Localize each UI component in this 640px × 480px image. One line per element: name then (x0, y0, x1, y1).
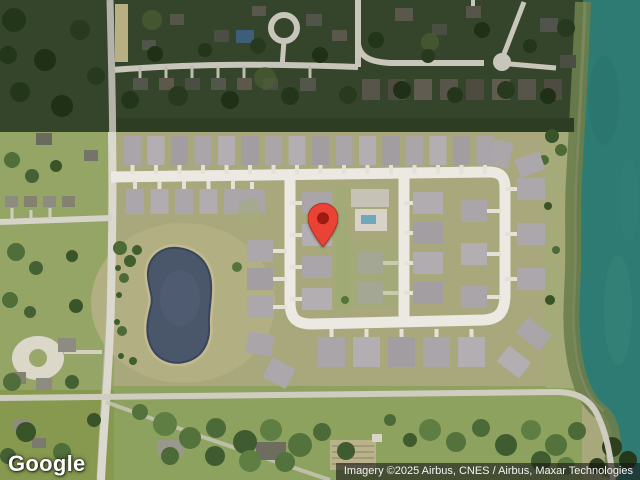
subdivision-houses-house (413, 192, 443, 214)
google-logo[interactable]: Google (8, 451, 86, 477)
subdivision-houses-house (458, 337, 485, 367)
old-neighborhood-house (414, 79, 432, 100)
field-details-tree (24, 306, 36, 318)
old-neighborhood (332, 30, 347, 41)
field-details-tree (25, 169, 39, 183)
old-neighborhood (493, 53, 511, 71)
old-neighborhood (306, 14, 322, 26)
field-details-tree (4, 152, 20, 168)
field-details-tree (3, 373, 21, 391)
old-neighborhood-tree (339, 86, 357, 104)
field-details-tree (132, 245, 142, 255)
field-details-tree (113, 241, 127, 255)
old-neighborhood (252, 6, 266, 16)
field-details-tree (545, 295, 555, 305)
field-details-tree (132, 404, 148, 420)
field-details-house (62, 196, 75, 207)
subdivision-houses (351, 189, 389, 207)
old-neighborhood (170, 14, 184, 25)
subdivision-houses-house (124, 136, 141, 165)
subdivision-houses-house (517, 178, 545, 200)
old-neighborhood-tree (523, 39, 537, 53)
subdivision-houses-house (289, 136, 306, 165)
old-neighborhood (236, 30, 254, 43)
old-neighborhood-tree (87, 67, 105, 85)
subdivision-houses-house (461, 200, 487, 222)
pond (160, 270, 200, 326)
field-details-tree (115, 265, 121, 271)
old-neighborhood-house (466, 79, 484, 100)
field-details-tree (116, 292, 122, 298)
map-viewport: Google Imagery ©2025 Airbus, CNES / Airb… (0, 0, 640, 480)
subdivision-houses-house (353, 337, 380, 367)
subdivision-houses-house (151, 189, 169, 214)
field-details-tree (545, 129, 559, 143)
subdivision-houses-house (453, 136, 470, 165)
field-details-tree (118, 353, 124, 359)
subdivision-houses-house (336, 136, 353, 165)
old-neighborhood-tree (281, 87, 299, 105)
subdivision-houses-house (406, 136, 423, 165)
subdivision-houses-house (359, 136, 376, 165)
field-details-tree (124, 255, 136, 267)
field-details-tree (69, 299, 83, 313)
old-neighborhood (282, 41, 284, 67)
old-neighborhood (560, 55, 576, 68)
old-neighborhood (300, 78, 316, 91)
old-neighborhood-tree (421, 49, 435, 63)
subdivision-houses-house (148, 136, 165, 165)
field-details-tree (7, 243, 25, 261)
field-details-tree (205, 446, 225, 466)
field-details-tree (16, 422, 36, 442)
old-neighborhood-tree (421, 33, 439, 51)
subdivision-houses-house (413, 282, 443, 304)
field-details-tree (555, 144, 567, 156)
subdivision-houses-house (242, 136, 259, 165)
subdivision-houses-house (247, 240, 273, 262)
field-details-tree (521, 420, 541, 440)
old-neighborhood-tree (198, 43, 212, 57)
field-details-tree (260, 419, 282, 441)
subdivision-houses (245, 331, 274, 357)
subdivision-houses-house (517, 268, 545, 290)
field-details-tree (545, 434, 567, 456)
old-neighborhood-tree (168, 86, 188, 106)
field-details-tree (239, 450, 261, 472)
field-details (36, 133, 52, 145)
old-neighborhood-tree (2, 8, 26, 32)
subdivision-houses-house (126, 189, 144, 214)
field-details-tree (275, 452, 295, 472)
old-neighborhood (432, 24, 447, 35)
old-neighborhood-tree (254, 67, 276, 89)
old-neighborhood-house (133, 78, 148, 90)
field-details-tree (2, 292, 18, 308)
subdivision-houses-house (218, 136, 235, 165)
subdivision-houses-house (388, 337, 415, 367)
subdivision-houses-house (195, 136, 212, 165)
subdivision-houses-house (171, 136, 188, 165)
old-neighborhood (540, 18, 558, 32)
old-neighborhood-tree (70, 20, 90, 40)
field-details-tree (446, 432, 466, 452)
subdivision-houses-tree (341, 296, 349, 304)
subdivision-houses-house (175, 189, 193, 214)
field-details-tree (419, 419, 441, 441)
field-details (36, 378, 52, 390)
subdivision-houses-house (383, 136, 400, 165)
lake-water (619, 158, 639, 242)
pin-body-icon (308, 203, 338, 246)
subdivision-houses-house (247, 268, 273, 290)
field-details-tree (65, 375, 79, 389)
old-neighborhood-tree (221, 91, 239, 109)
field-details-tree (114, 319, 120, 325)
old-neighborhood-house (362, 79, 380, 100)
field-details-tree (29, 261, 43, 275)
field-details-tree (313, 423, 331, 441)
old-neighborhood-tree (312, 47, 328, 63)
old-neighborhood-tree (474, 22, 490, 38)
old-neighborhood-house (237, 78, 252, 90)
old-neighborhood-house (185, 78, 200, 90)
imagery-attribution: Imagery ©2025 Airbus, CNES / Airbus, Max… (336, 463, 640, 480)
old-neighborhood-tree (34, 49, 56, 71)
field-details-house (24, 196, 37, 207)
location-pin[interactable] (308, 202, 338, 252)
lake-water (604, 255, 632, 365)
field-details-tree (544, 202, 552, 210)
old-neighborhood-tree (557, 19, 575, 37)
old-neighborhood-house (211, 78, 226, 90)
field-details-tree (495, 434, 517, 456)
old-neighborhood (395, 8, 413, 21)
field-details-tree (233, 430, 257, 454)
old-neighborhood-tree (393, 81, 411, 99)
old-neighborhood-tree (10, 82, 30, 102)
field-details-tree (119, 273, 129, 283)
subdivision-houses-house (302, 288, 332, 310)
field-details-tree (129, 357, 137, 365)
field-details-tree (206, 418, 226, 438)
subdivision-houses-house (430, 136, 447, 165)
old-neighborhood-tree (447, 87, 463, 103)
subdivision-houses-house (247, 296, 273, 318)
subdivision-houses-house (312, 136, 329, 165)
subdivision-houses-house (517, 223, 545, 245)
subdivision-houses-house (413, 222, 443, 244)
field-details (32, 438, 46, 448)
field-details-tree (179, 427, 201, 449)
field-details-tree (161, 447, 179, 465)
field-details-tree (337, 442, 355, 460)
old-neighborhood-tree (250, 38, 266, 54)
field-details-tree (87, 413, 101, 427)
subdivision-houses-house (200, 189, 218, 214)
old-neighborhood (466, 6, 481, 18)
field-details-house (5, 196, 18, 207)
field-details (58, 338, 76, 352)
old-neighborhood-tree (51, 95, 73, 117)
old-neighborhood (115, 4, 128, 62)
lake-water (589, 55, 619, 145)
subdivision-houses-house (423, 337, 450, 367)
subdivision-houses-tree (232, 262, 242, 272)
field-details-tree (117, 326, 127, 336)
subdivision-houses-house (265, 136, 282, 165)
field-details-tree (288, 433, 312, 457)
subdivision-houses-house (461, 286, 487, 308)
field-details-tree (472, 419, 490, 437)
field-details-tree (403, 433, 417, 447)
old-neighborhood-tree (121, 91, 139, 109)
field-details-tree (568, 422, 586, 440)
field-details-tree (66, 250, 78, 262)
subdivision-houses-house (461, 243, 487, 265)
field-details (84, 150, 98, 161)
old-neighborhood (112, 118, 574, 132)
main-roads (0, 218, 112, 222)
old-neighborhood-house (518, 79, 536, 100)
old-neighborhood (214, 30, 229, 42)
subdivision-houses-house (413, 252, 443, 274)
subdivision-houses (361, 215, 376, 224)
old-neighborhood-tree (142, 10, 162, 30)
field-details (372, 434, 382, 442)
field-details-house (43, 196, 56, 207)
pin-dot-icon (317, 212, 329, 224)
field-details-tree (552, 246, 560, 254)
field-details-tree (153, 412, 177, 436)
old-neighborhood-tree (368, 32, 384, 48)
field-details-tree (50, 160, 62, 172)
subdivision-houses (238, 198, 262, 226)
subdivision-houses-house (302, 256, 332, 278)
old-neighborhood-tree (540, 88, 556, 104)
field-details-tree (384, 414, 396, 426)
subdivision-houses-house (318, 337, 345, 367)
old-neighborhood-tree (147, 46, 163, 62)
old-neighborhood-tree (497, 81, 515, 99)
field-details (29, 349, 47, 367)
